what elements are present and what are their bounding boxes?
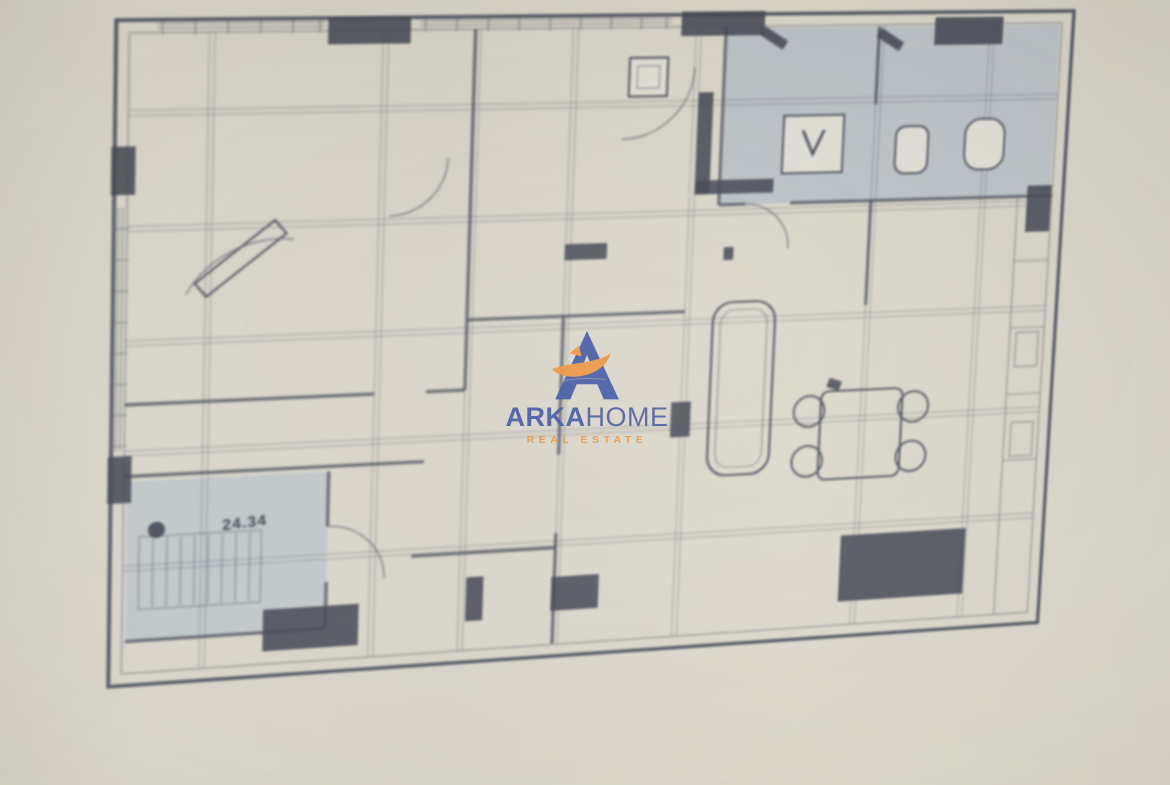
kitchen-fixture [629,58,669,97]
dining-table-icon [817,388,903,480]
door-leaf [194,220,286,297]
logo-mark-icon [545,331,629,401]
brand-name: ARKAHOME [497,403,677,431]
toilet-icon [894,126,929,174]
brand-watermark: ARKAHOME REAL ESTATE [497,331,677,446]
bathroom-floor [721,25,1061,205]
sofa-icon [706,300,776,476]
living-dining-furniture [706,295,934,486]
floor-plan-photo: 24.34 [0,0,1170,785]
brand-name-primary: ARKA [506,402,586,432]
door-swing [743,203,790,250]
table-mark [826,378,842,391]
brand-tagline: REAL ESTATE [497,434,677,446]
shower-icon [782,115,845,174]
sink-icon [963,118,1005,170]
door-swing [389,158,448,216]
brand-name-secondary: HOME [586,402,669,432]
